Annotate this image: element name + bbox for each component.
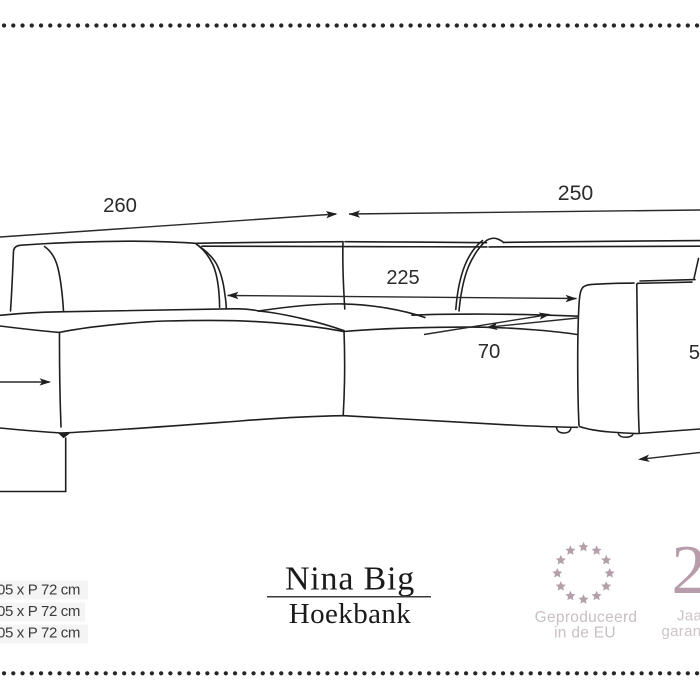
svg-text:Hoekbank: Hoekbank: [289, 598, 411, 630]
svg-text:55: 55: [689, 342, 700, 364]
svg-text:250: 250: [558, 181, 594, 205]
svg-text:Jaar: Jaar: [677, 608, 700, 625]
svg-text:05 x P 72 cm: 05 x P 72 cm: [0, 624, 80, 641]
svg-text:225: 225: [386, 267, 419, 289]
svg-text:260: 260: [103, 195, 137, 217]
svg-text:garantie: garantie: [662, 623, 700, 640]
svg-text:70: 70: [478, 341, 501, 363]
svg-text:2: 2: [672, 532, 700, 609]
svg-text:Nina Big: Nina Big: [285, 561, 415, 598]
svg-text:05 x P 72 cm: 05 x P 72 cm: [0, 582, 80, 599]
svg-text:Geproduceerd: Geproduceerd: [535, 609, 638, 626]
svg-text:05 x P 72 cm: 05 x P 72 cm: [0, 603, 80, 620]
svg-text:in de EU: in de EU: [554, 625, 616, 642]
